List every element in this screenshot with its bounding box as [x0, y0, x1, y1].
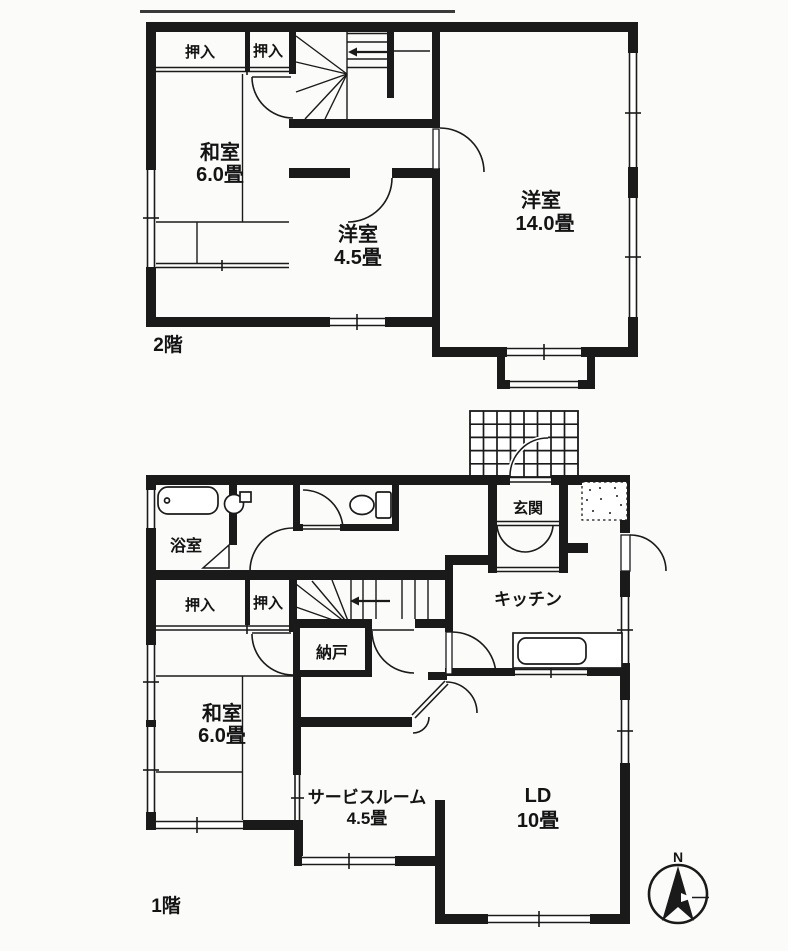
room-size-2f-large-room: 14.0畳 — [516, 212, 575, 235]
room-label-1f-service: サービスルーム — [308, 788, 427, 807]
window-1f-bath — [146, 490, 156, 528]
room-label-1f-genkan: 玄関 — [513, 499, 543, 517]
room-label-1f-bath: 浴室 — [170, 536, 202, 555]
kitchen-counter — [513, 633, 622, 668]
scan-artifact — [140, 10, 455, 13]
room-label-1f-closet1: 押入 — [185, 596, 215, 614]
window-1f-ld-bottom — [488, 911, 590, 927]
window-1f-washitsu-bottom — [156, 817, 243, 833]
toilet — [350, 492, 391, 518]
door-1f-stairfoot — [372, 630, 414, 673]
genkan-step — [497, 568, 559, 572]
sliding-divider-2f — [156, 260, 289, 271]
window-2f-left — [143, 170, 159, 267]
washbasin — [225, 492, 252, 514]
stairs-up-arrow-1f — [350, 597, 390, 606]
entrance-porch — [470, 411, 578, 477]
window-2f-right-lower — [625, 198, 641, 317]
floor-plan-2f: 押入 押入 和室 6.0畳 洋室 4.5畳 洋室 14.0畳 2階 — [143, 22, 641, 389]
door-1f-genkan-double — [497, 522, 559, 553]
stairs-up-arrow-2f — [348, 48, 387, 57]
door-1f-bath-folding — [203, 545, 229, 568]
floorplan-page: 押入 押入 和室 6.0畳 洋室 4.5畳 洋室 14.0畳 2階 — [0, 0, 788, 951]
room-label-1f-washitsu: 和室 — [202, 701, 242, 725]
floor-plan-1f: 浴室 押入 押入 和室 6.0畳 納戸 玄関 キッチン サービスルーム 4.5畳… — [143, 411, 666, 927]
bathtub — [158, 487, 218, 514]
window-1f-right-ld — [617, 700, 633, 763]
room-label-2f-closet2: 押入 — [253, 42, 283, 60]
floorplan-svg: 押入 押入 和室 6.0畳 洋室 4.5畳 洋室 14.0畳 2階 — [0, 0, 788, 951]
sliding-door-washitsu-service — [291, 775, 304, 820]
room-label-2f-large-room: 洋室 — [521, 188, 561, 212]
door-2f-washitsu — [252, 77, 293, 118]
door-2f-large-room — [433, 128, 484, 172]
entrance-threshold — [510, 478, 551, 483]
room-size-1f-service: 4.5畳 — [347, 809, 388, 828]
room-size-2f-washitsu: 6.0畳 — [196, 163, 244, 186]
window-2f-small-room — [330, 314, 385, 330]
room-label-2f-washitsu: 和室 — [200, 140, 240, 164]
room-label-1f-nando: 納戸 — [316, 643, 348, 662]
floor-label-2f: 2階 — [153, 334, 183, 356]
window-1f-service-bottom — [302, 853, 395, 869]
window-2f-right-upper — [625, 53, 641, 167]
window-1f-left-lower — [143, 727, 159, 812]
door-1f-toilet — [303, 490, 343, 530]
door-1f-washroom — [250, 528, 293, 571]
tatami-lines-1f — [156, 676, 293, 820]
compass-north-arrow-icon — [662, 866, 694, 921]
window-2f-bay — [507, 344, 581, 388]
room-size-2f-small-room: 4.5畳 — [334, 246, 382, 269]
room-label-1f-ld: LD — [525, 785, 552, 807]
room-size-1f-washitsu: 6.0畳 — [198, 724, 246, 747]
compass: N — [649, 849, 709, 923]
closet-doors-2f — [156, 64, 289, 75]
dotted-area — [582, 482, 627, 520]
compass-north-label: N — [673, 849, 683, 865]
room-label-1f-kitchen: キッチン — [494, 590, 562, 609]
room-label-2f-small-room: 洋室 — [338, 222, 378, 246]
room-label-2f-closet1: 押入 — [185, 43, 215, 61]
window-1f-left-upper — [143, 645, 159, 720]
door-2f-small-room — [348, 178, 392, 222]
door-1f-ld-diagonal — [412, 681, 477, 733]
floor-label-1f: 1階 — [151, 895, 181, 917]
door-1f-washitsu — [252, 633, 293, 675]
room-size-1f-ld: 10畳 — [517, 809, 559, 832]
room-label-1f-closet2: 押入 — [253, 594, 283, 612]
door-1f-front — [621, 535, 666, 571]
stairs-2f — [296, 31, 430, 119]
